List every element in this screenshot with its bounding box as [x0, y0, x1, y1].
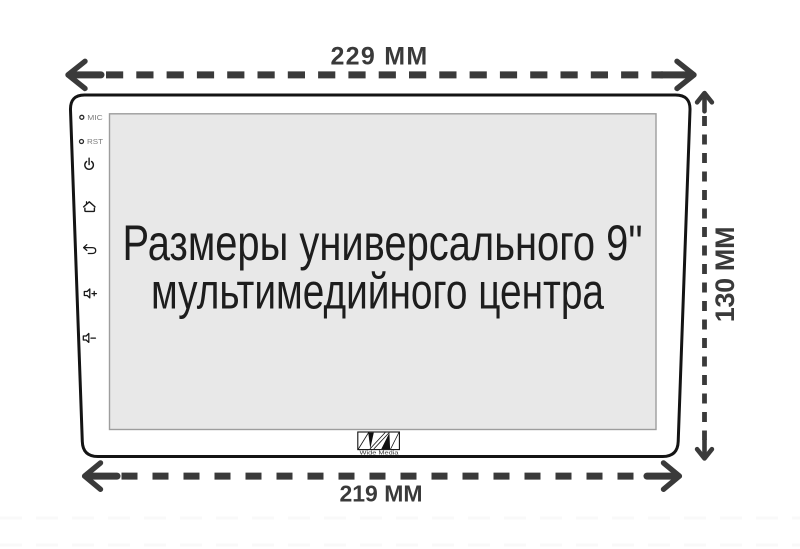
svg-text:мультимедийного центра: мультимедийного центра	[151, 264, 604, 320]
svg-text:MIC: MIC	[87, 113, 103, 122]
svg-text:229 MM: 229 MM	[330, 42, 428, 70]
svg-text:130 MM: 130 MM	[710, 227, 740, 322]
svg-text:219 MM: 219 MM	[339, 480, 422, 506]
svg-text:RST: RST	[87, 137, 104, 146]
svg-text:Wide Media: Wide Media	[360, 451, 399, 457]
